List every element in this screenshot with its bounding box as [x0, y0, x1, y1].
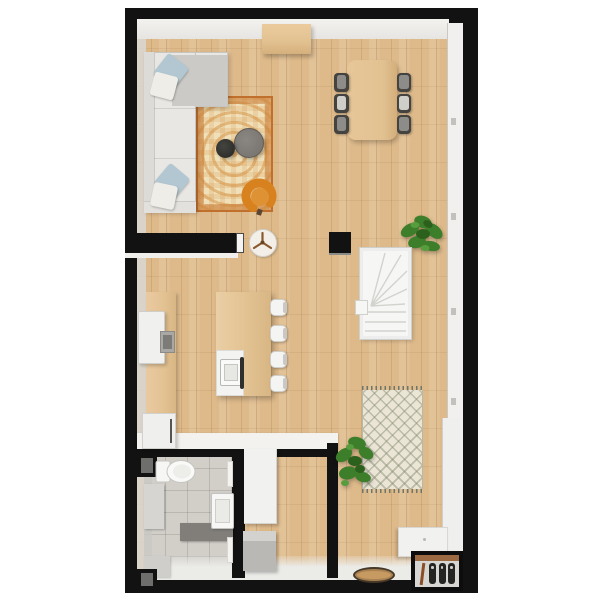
throw-pillow-white — [150, 182, 178, 210]
wardrobe-cabinet — [244, 449, 277, 524]
bar-stool — [270, 299, 287, 316]
storage-box — [243, 531, 276, 571]
window-handle — [451, 118, 456, 125]
door-frame-mark — [227, 461, 233, 487]
island-faucet — [240, 357, 244, 389]
chair-seat — [399, 117, 409, 131]
bar-stool — [270, 325, 287, 342]
doormat — [353, 567, 395, 583]
stool-back — [283, 302, 287, 313]
staircase — [360, 248, 411, 339]
island-sink — [220, 359, 242, 386]
sink-basin — [224, 364, 238, 381]
orange-armchair — [238, 174, 280, 216]
chair-seat — [399, 75, 409, 89]
chair-seat — [399, 96, 409, 110]
chair-seat — [337, 96, 347, 110]
bathroom-side-cabinet — [144, 484, 164, 529]
cabinet-handle — [170, 419, 172, 443]
south-wall-faces — [146, 556, 448, 580]
window-handle — [451, 308, 456, 315]
stool-back — [283, 354, 287, 365]
round-side-table — [249, 229, 277, 257]
dining-chair — [397, 115, 412, 134]
basin — [215, 499, 230, 523]
dining-chair — [334, 73, 349, 92]
shaft-opening — [141, 573, 153, 586]
dining-chair — [397, 94, 412, 113]
wall-end-cap — [236, 233, 244, 253]
shoe-rack-alcove — [411, 551, 463, 591]
stool-back — [283, 328, 287, 339]
stair-newel — [355, 300, 368, 315]
bar-stool — [270, 375, 287, 392]
potted-plant — [333, 433, 379, 489]
shoehorn — [420, 563, 426, 585]
base-cabinet — [142, 413, 176, 449]
bench-handle — [423, 538, 426, 541]
wall-living-kitchen-face — [125, 253, 238, 258]
structural-column — [329, 232, 351, 255]
dining-chair — [334, 115, 349, 134]
rug-fringe-bottom — [362, 489, 423, 493]
coffee-table-large — [234, 128, 264, 158]
shoe-pair — [439, 563, 446, 584]
sideboard — [262, 24, 311, 54]
alcove-back-panel — [415, 555, 459, 561]
coffee-table-small — [216, 139, 235, 158]
window-handle — [451, 398, 456, 405]
duct-shaft-bottom — [137, 569, 157, 590]
shoe-pair — [429, 563, 436, 584]
washbasin — [211, 493, 234, 529]
sofa-seam — [154, 108, 196, 109]
toilet — [155, 458, 197, 486]
cooktop-surface — [163, 335, 172, 349]
chair-seat — [337, 75, 347, 89]
window-handle — [451, 213, 456, 220]
sofa-seam — [154, 158, 196, 159]
stool-back — [283, 378, 287, 389]
chair-seat — [337, 117, 347, 131]
floor-plan-canvas — [0, 0, 600, 600]
cooktop — [160, 331, 175, 353]
wall-living-kitchen — [125, 233, 238, 253]
dining-chair — [334, 94, 349, 113]
dining-chair — [397, 73, 412, 92]
shaft-opening — [141, 458, 153, 473]
duct-shaft-top — [137, 454, 157, 477]
shoe-pair — [448, 563, 455, 584]
bar-stool — [270, 351, 287, 368]
door-frame-mark — [227, 537, 233, 563]
dining-table — [347, 60, 397, 140]
